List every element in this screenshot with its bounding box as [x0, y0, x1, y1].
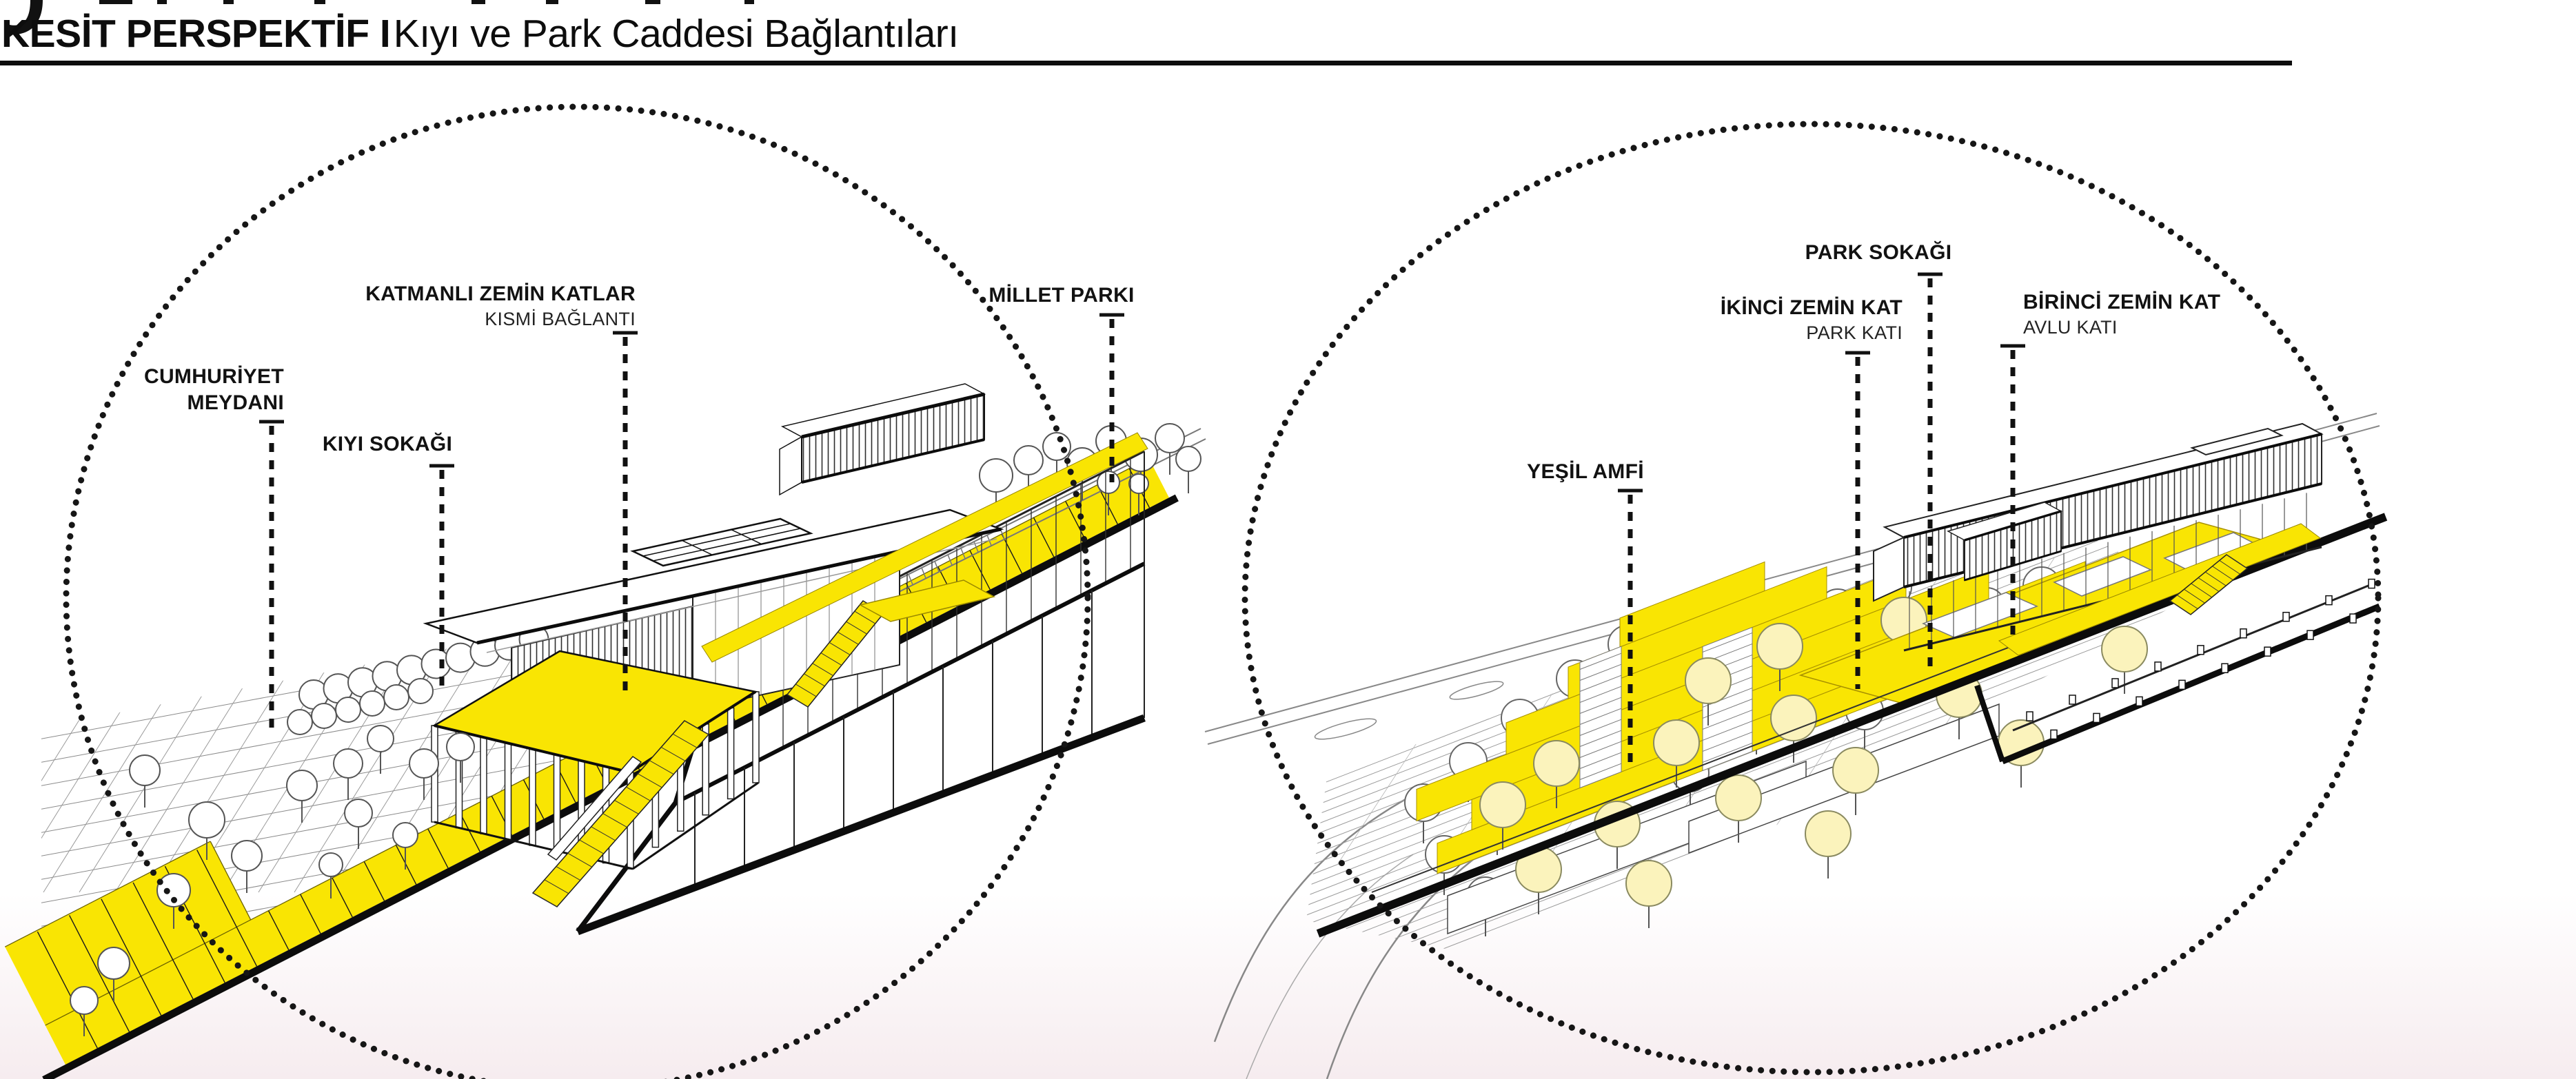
- label-ikinci-line1: İKİNCİ ZEMİN KAT: [1654, 295, 1903, 321]
- label-yesil-amfi: YEŞİL AMFİ: [1482, 459, 1689, 485]
- label-cumhuriyet-meydani: CUMHURİYET MEYDANI: [77, 364, 284, 416]
- label-ikinci-zemin-kat: İKİNCİ ZEMİN KAT PARK KATI: [1654, 295, 1903, 345]
- label-kiyi-line1: KIYI SOKAĞI: [318, 431, 456, 458]
- upper-louver-box: [780, 384, 984, 495]
- label-millet-parki: MİLLET PARKI: [958, 282, 1165, 309]
- label-katmanli-line1: KATMANLI ZEMİN KATLAR: [358, 281, 636, 307]
- section-perspective-artwork: [0, 0, 2576, 1079]
- label-cumhuriyet-line1: CUMHURİYET: [77, 364, 284, 390]
- label-park-sokagi: PARK SOKAĞI: [1773, 240, 1984, 266]
- presentation-board: KESİT PERSPEKTİF I Kıyı ve Park Caddesi …: [0, 0, 2576, 1079]
- label-millet-line1: MİLLET PARKI: [958, 282, 1165, 309]
- page-title-primary: KESİT PERSPEKTİF I: [1, 12, 390, 56]
- title-block: KESİT PERSPEKTİF I Kıyı ve Park Caddesi …: [1, 11, 959, 56]
- title-underline: [0, 61, 2292, 65]
- label-ikinci-line2: PARK KATI: [1654, 321, 1903, 345]
- label-katmanli-zemin-katlar: KATMANLI ZEMİN KATLAR KISMİ BAĞLANTI: [358, 281, 636, 331]
- page-title-subtitle: Kıyı ve Park Caddesi Bağlantıları: [394, 12, 959, 56]
- right-perspective-drawing: [1205, 358, 2386, 1079]
- label-kiyi-sokagi: KIYI SOKAĞI: [318, 431, 456, 458]
- label-park-line1: PARK SOKAĞI: [1773, 240, 1984, 266]
- label-katmanli-line2: KISMİ BAĞLANTI: [358, 307, 636, 331]
- label-birinci-zemin-kat: BİRİNCİ ZEMİN KAT AVLU KATI: [2023, 289, 2285, 339]
- label-yesil-line1: YEŞİL AMFİ: [1482, 459, 1689, 485]
- label-cumhuriyet-line2: MEYDANI: [77, 390, 284, 416]
- label-birinci-line1: BİRİNCİ ZEMİN KAT: [2023, 289, 2285, 316]
- left-perspective-drawing: [0, 377, 1206, 1079]
- label-birinci-line2: AVLU KATI: [2023, 316, 2285, 339]
